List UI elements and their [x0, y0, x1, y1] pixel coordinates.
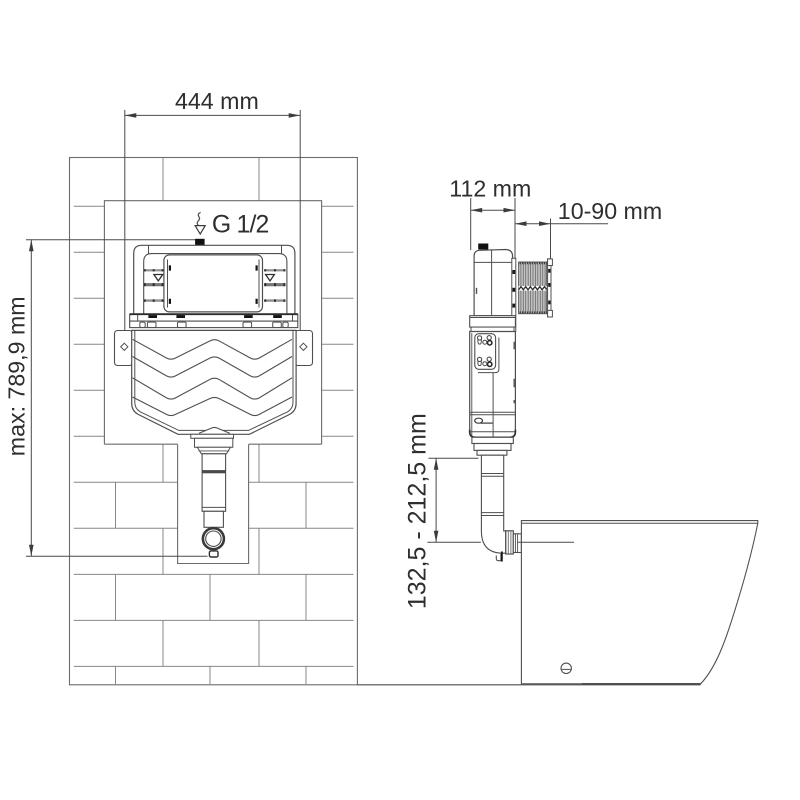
svg-text:112 mm: 112 mm [449, 175, 531, 201]
svg-text:G 1/2: G 1/2 [212, 211, 269, 238]
svg-text:10-90 mm: 10-90 mm [558, 198, 662, 224]
svg-text:132,5 - 212,5 mm: 132,5 - 212,5 mm [403, 413, 431, 609]
svg-text:444 mm: 444 mm [175, 88, 259, 114]
svg-text:max: 789,9 mm: max: 789,9 mm [3, 296, 29, 456]
